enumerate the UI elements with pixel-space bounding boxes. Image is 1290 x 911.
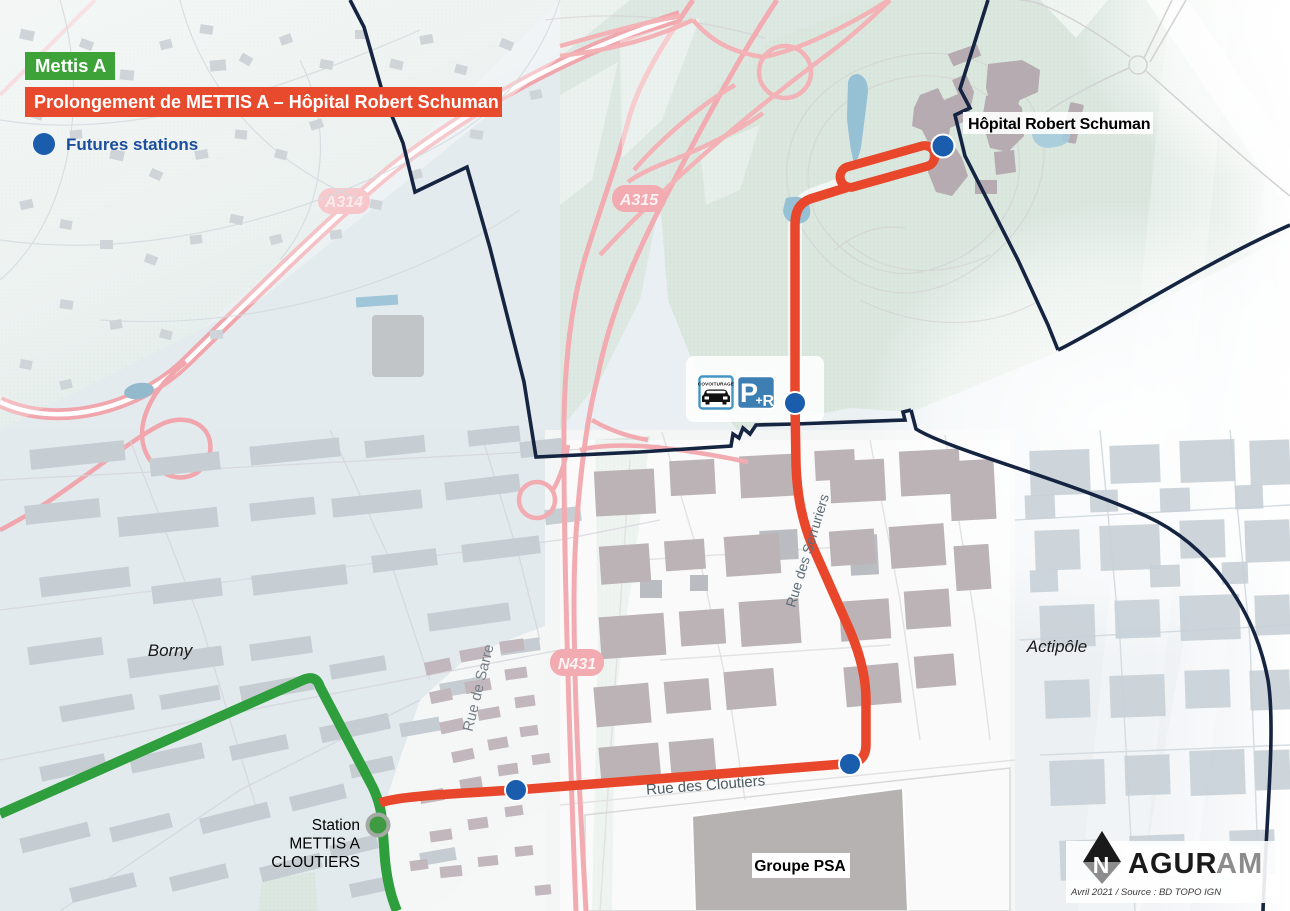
svg-text:N431: N431: [558, 656, 596, 673]
svg-text:Station: Station: [312, 817, 360, 834]
svg-text:Groupe PSA: Groupe PSA: [754, 858, 845, 875]
svg-text:Prolongement de METTIS A – Hôp: Prolongement de METTIS A – Hôpital Rober…: [34, 92, 499, 112]
svg-text:A315: A315: [619, 192, 659, 209]
svg-text:AM: AM: [1216, 848, 1263, 880]
svg-text:Hôpital Robert Schuman: Hôpital Robert Schuman: [968, 116, 1150, 133]
svg-text:COVOITURAGE: COVOITURAGE: [698, 382, 734, 387]
svg-text:Avril 2021 / Source : BD TOPO: Avril 2021 / Source : BD TOPO IGN: [1070, 887, 1221, 898]
svg-text:Futures stations: Futures stations: [66, 135, 198, 154]
svg-text:N: N: [1093, 852, 1110, 878]
svg-text:METTIS A: METTIS A: [289, 836, 360, 853]
svg-text:CLOUTIERS: CLOUTIERS: [271, 854, 360, 871]
svg-text:Actipôle: Actipôle: [1026, 637, 1087, 656]
svg-text:AGUR: AGUR: [1128, 848, 1217, 880]
svg-text:+: +: [756, 394, 763, 408]
svg-text:R: R: [763, 393, 775, 410]
svg-text:Borny: Borny: [148, 641, 194, 660]
svg-text:Mettis A: Mettis A: [35, 55, 106, 76]
